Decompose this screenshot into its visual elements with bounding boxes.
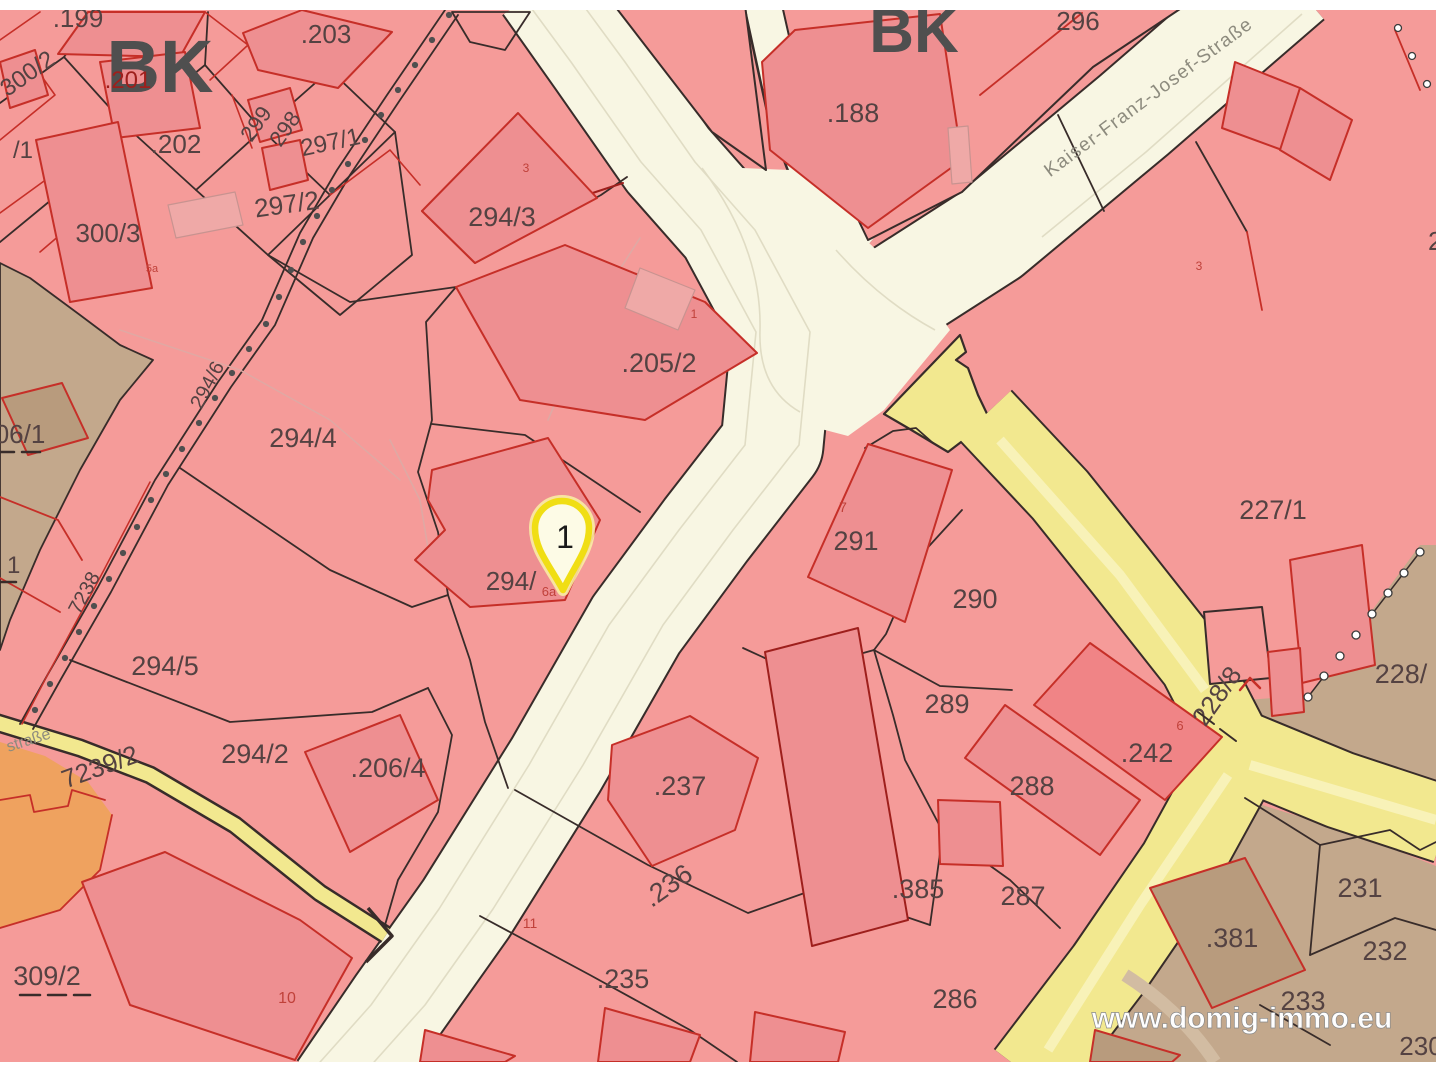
svg-text:294/5: 294/5 <box>131 651 199 681</box>
svg-text:6: 6 <box>1176 718 1183 733</box>
svg-text:.237: .237 <box>654 771 707 801</box>
svg-text:11: 11 <box>523 915 538 931</box>
svg-text:232: 232 <box>1362 936 1407 966</box>
svg-text:.205/2: .205/2 <box>621 348 696 378</box>
svg-text:5a: 5a <box>146 263 159 275</box>
svg-text:291: 291 <box>833 526 878 556</box>
svg-text:231: 231 <box>1337 873 1382 903</box>
svg-text:.201: .201 <box>105 67 152 94</box>
svg-text:289: 289 <box>924 689 969 719</box>
svg-text:294/2: 294/2 <box>221 739 289 769</box>
svg-text:228/: 228/ <box>1375 659 1428 689</box>
svg-text:286: 286 <box>932 984 977 1014</box>
svg-text:3: 3 <box>523 161 530 175</box>
svg-text:06/1: 06/1 <box>0 419 45 449</box>
svg-text:294/4: 294/4 <box>269 423 337 453</box>
svg-text:.235: .235 <box>597 964 650 994</box>
svg-text:.203: .203 <box>301 19 352 49</box>
svg-text:227/1: 227/1 <box>1239 495 1307 525</box>
svg-text:3: 3 <box>1196 259 1203 273</box>
svg-text:1: 1 <box>556 519 574 555</box>
svg-text:7: 7 <box>839 499 847 515</box>
svg-text:10: 10 <box>278 990 296 1007</box>
svg-text:287: 287 <box>1000 881 1045 911</box>
svg-text:1: 1 <box>691 307 698 321</box>
svg-text:/1: /1 <box>13 137 33 164</box>
svg-text:230: 230 <box>1399 1031 1436 1061</box>
svg-text:290: 290 <box>952 584 997 614</box>
svg-text:309/2: 309/2 <box>13 961 81 991</box>
svg-text:288: 288 <box>1009 771 1054 801</box>
svg-text:1: 1 <box>7 552 20 579</box>
svg-text:.206/4: .206/4 <box>350 753 425 783</box>
svg-text:.202: .202 <box>151 129 202 159</box>
svg-text:300/3: 300/3 <box>75 218 140 248</box>
svg-text:294/3: 294/3 <box>468 202 536 232</box>
svg-text:294/: 294/ <box>486 566 537 596</box>
svg-text:2: 2 <box>1428 226 1436 256</box>
svg-text:.242: .242 <box>1121 738 1174 768</box>
svg-text:.188: .188 <box>827 98 880 128</box>
svg-text:.385: .385 <box>892 874 945 904</box>
svg-text:www.domig-immo.eu: www.domig-immo.eu <box>1091 1002 1393 1035</box>
svg-text:.381: .381 <box>1206 923 1259 953</box>
svg-text:296: 296 <box>1056 6 1099 36</box>
